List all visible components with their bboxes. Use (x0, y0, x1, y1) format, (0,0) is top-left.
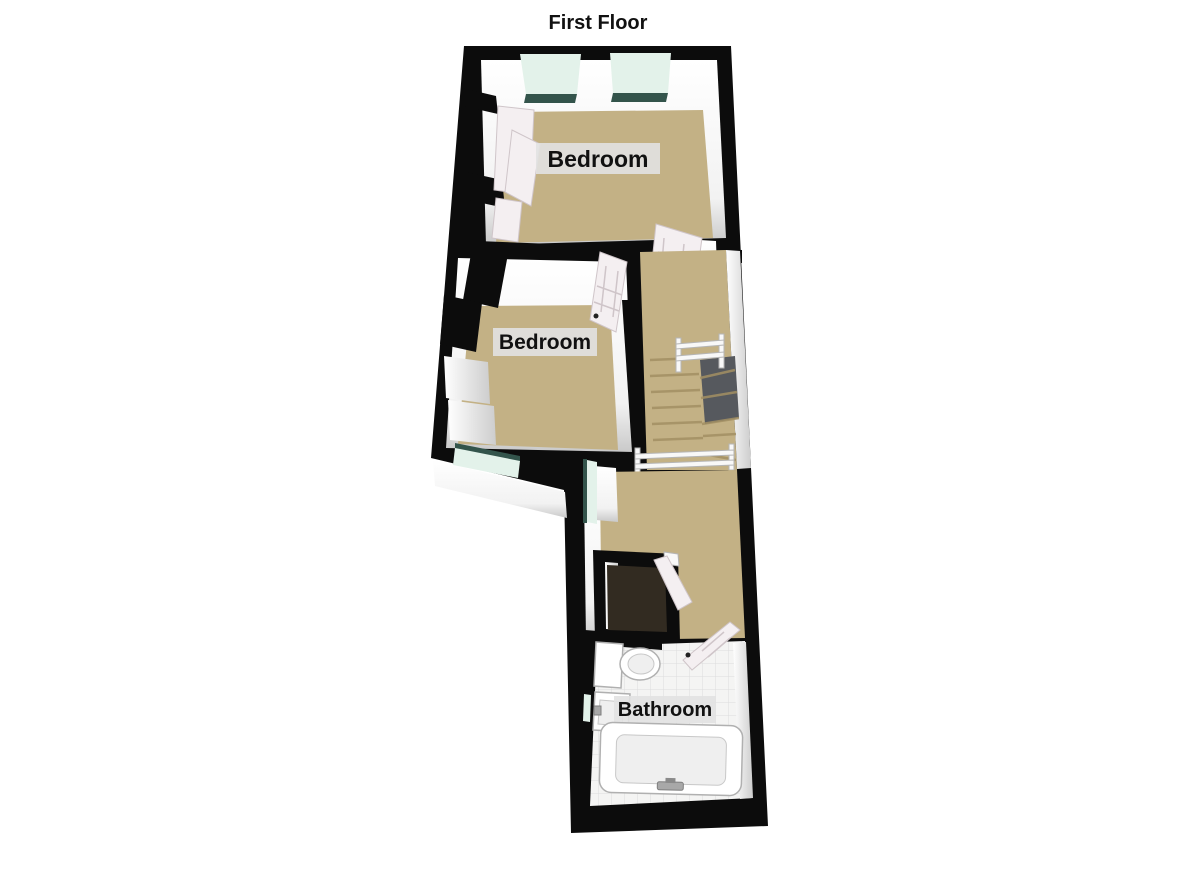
first-floor-title: First Floor (549, 12, 648, 34)
landing (635, 250, 751, 474)
floor-plan-page: First Floor Bedroom (0, 0, 1200, 872)
wardrobe-panel (492, 198, 522, 242)
window-icon (583, 694, 591, 722)
chimney-breast (440, 295, 482, 352)
bedroom-1: Bedroom (462, 53, 726, 245)
bedroom-2-label: Bedroom (499, 331, 591, 354)
bedroom-2: Bedroom (440, 248, 647, 478)
bedroom-1-label: Bedroom (548, 146, 649, 172)
newel-wall-stub (594, 466, 618, 522)
window-icon (583, 459, 597, 524)
window-icon (520, 54, 581, 103)
floor-plan-svg: First Floor Bedroom (0, 0, 1200, 872)
bathroom-label: Bathroom (618, 699, 712, 721)
cupboard (593, 550, 692, 642)
cupboard-floor (607, 565, 667, 632)
bathtub-icon (599, 722, 743, 796)
alcove-shelf (448, 400, 496, 445)
window-icon (610, 53, 671, 102)
alcove-shelf (444, 356, 490, 404)
bathroom: Bathroom (583, 622, 753, 806)
